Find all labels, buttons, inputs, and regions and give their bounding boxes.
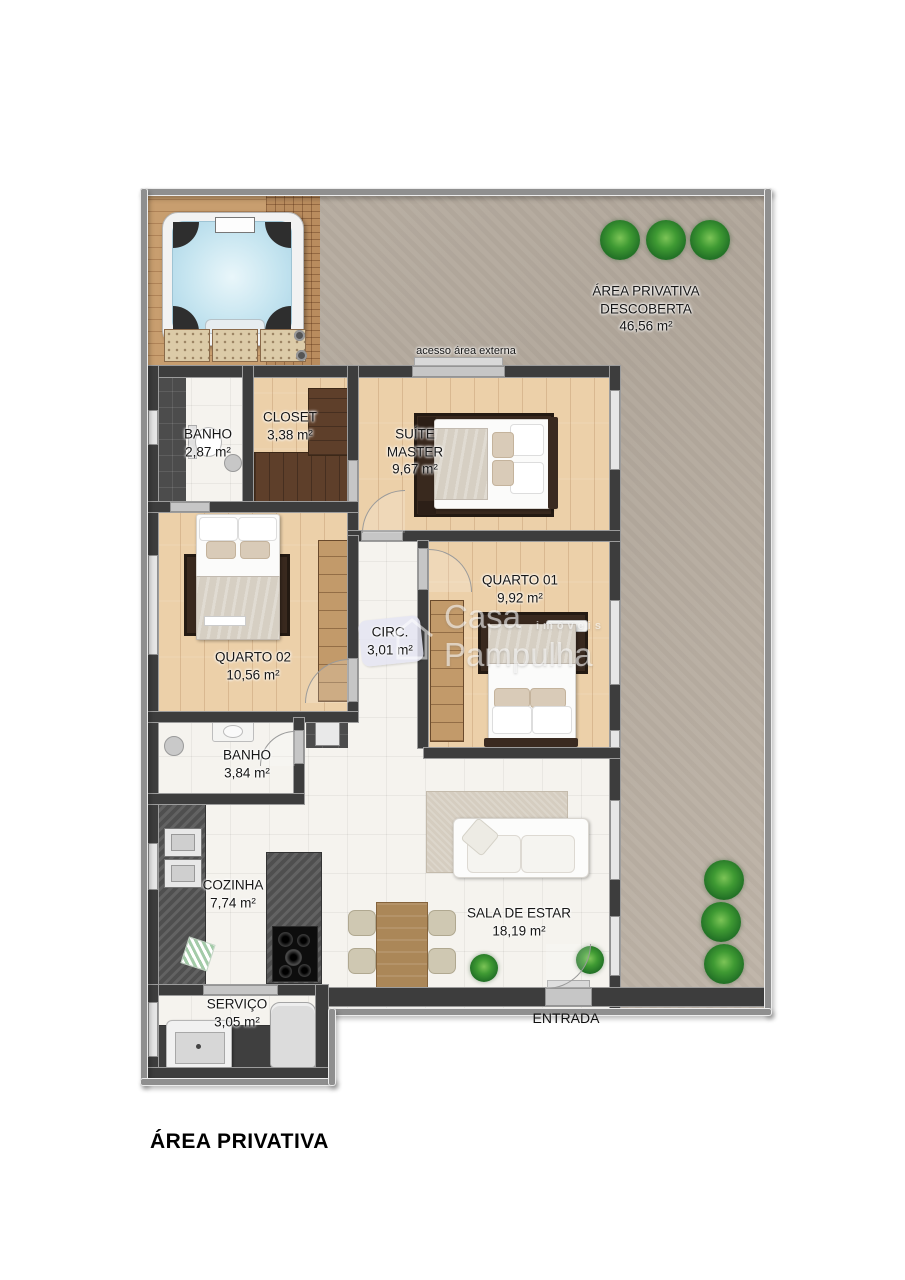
suite-master-label: SUÍTE MASTER 9,67 m² bbox=[387, 426, 443, 479]
window bbox=[610, 916, 620, 976]
door-opening bbox=[348, 460, 358, 504]
cooktop bbox=[272, 926, 318, 982]
burner bbox=[297, 934, 310, 947]
bed-runner bbox=[204, 616, 246, 626]
site-boundary bbox=[764, 188, 772, 1016]
quarto-02-pillow bbox=[240, 541, 270, 559]
deck-mat bbox=[212, 329, 258, 362]
external-access-door bbox=[412, 366, 505, 377]
window bbox=[610, 800, 620, 880]
wall bbox=[243, 366, 253, 512]
site-boundary bbox=[140, 1078, 336, 1086]
site-boundary bbox=[328, 1008, 336, 1086]
dining-table bbox=[376, 902, 428, 990]
window bbox=[610, 730, 620, 750]
kitchen-sink bbox=[164, 859, 202, 888]
quarto-01-pillow bbox=[494, 688, 530, 708]
quarto-01-pillow bbox=[492, 706, 532, 734]
dining-chair bbox=[428, 948, 456, 974]
deck-fitting bbox=[296, 350, 307, 361]
sink-bowl bbox=[171, 834, 195, 851]
dining-chair bbox=[428, 910, 456, 936]
deck-mat bbox=[164, 329, 210, 362]
deck-fitting bbox=[294, 330, 305, 341]
patio-plant bbox=[704, 860, 744, 900]
patio-plant bbox=[646, 220, 686, 260]
window bbox=[148, 843, 158, 890]
door-opening bbox=[170, 502, 210, 512]
patio-plant bbox=[690, 220, 730, 260]
banho-suite-label: BANHO 2,87 m² bbox=[184, 425, 232, 460]
shower-area bbox=[156, 375, 186, 503]
wall bbox=[316, 985, 328, 1078]
floor-drain bbox=[164, 736, 184, 756]
quarto-02-pillow bbox=[199, 517, 238, 541]
quarto-02-pillow bbox=[238, 517, 277, 541]
page-title: ÁREA PRIVATIVA bbox=[150, 1130, 329, 1154]
watermark-brand-line1: Casa bbox=[444, 598, 521, 636]
suite-bed-pillow bbox=[510, 462, 544, 494]
entrada-label: ENTRADA bbox=[533, 1010, 600, 1026]
watermark-house-icon bbox=[386, 614, 438, 670]
window bbox=[148, 1002, 158, 1057]
door-opening bbox=[348, 658, 358, 702]
window bbox=[610, 600, 620, 685]
door-step bbox=[414, 357, 503, 366]
suite-bed-pillow bbox=[492, 432, 514, 458]
burner bbox=[278, 932, 293, 947]
dining-chair bbox=[348, 910, 376, 936]
sliding-door bbox=[203, 985, 278, 995]
window bbox=[148, 555, 158, 655]
wall bbox=[148, 366, 620, 377]
outdoor-area-label: ÁREA PRIVATIVA DESCOBERTA 46,56 m² bbox=[592, 283, 699, 336]
cozinha-label: COZINHA 7,74 m² bbox=[203, 876, 264, 911]
burner bbox=[279, 965, 292, 978]
burner bbox=[285, 949, 302, 966]
sink-niche bbox=[306, 718, 348, 748]
quarto-02-blanket bbox=[196, 576, 280, 640]
closet-wardrobe bbox=[254, 452, 350, 504]
watermark-brand-line2: Pampulha bbox=[444, 636, 593, 674]
niche-sink bbox=[315, 722, 340, 746]
suite-bed-headboard bbox=[548, 417, 558, 509]
quarto-01-headboard bbox=[484, 738, 578, 747]
entrance-door bbox=[545, 988, 592, 1006]
quarto-02-pillow bbox=[206, 541, 236, 559]
wall bbox=[148, 1068, 328, 1078]
vanity bbox=[212, 720, 254, 742]
hot-tub bbox=[162, 212, 304, 346]
sofa-cushion bbox=[521, 835, 575, 873]
servico-label: SERVIÇO 3,05 m² bbox=[207, 995, 268, 1030]
watermark-brand-sub: imóveis bbox=[536, 620, 605, 632]
wall bbox=[148, 366, 158, 1008]
wall bbox=[148, 712, 358, 722]
laundry-tank bbox=[270, 1002, 316, 1068]
washer-knob bbox=[196, 1044, 201, 1049]
dining-chair bbox=[348, 948, 376, 974]
site-boundary bbox=[140, 188, 772, 196]
door-opening bbox=[294, 730, 304, 764]
window bbox=[610, 390, 620, 470]
floor-plan: ÁREA PRIVATIVA DESCOBERTA 46,56 m² acess… bbox=[148, 196, 764, 1086]
patio-plant bbox=[701, 902, 741, 942]
wall bbox=[318, 988, 764, 1006]
floor-plan-page: ÁREA PRIVATIVA DESCOBERTA 46,56 m² acess… bbox=[0, 0, 905, 1280]
wall bbox=[424, 748, 620, 758]
banho-social-label: BANHO 3,84 m² bbox=[223, 746, 271, 781]
basin bbox=[223, 725, 243, 738]
door-opening bbox=[418, 548, 428, 590]
kitchen-sink bbox=[164, 828, 202, 857]
quarto-02-label: QUARTO 02 10,56 m² bbox=[215, 648, 291, 683]
hot-tub-control-panel bbox=[215, 217, 255, 233]
indoor-plant bbox=[470, 954, 498, 982]
sofa bbox=[453, 818, 589, 878]
wall bbox=[148, 794, 304, 804]
suite-bed-pillow bbox=[492, 460, 514, 486]
site-boundary bbox=[140, 188, 148, 1086]
suite-bed-pillow bbox=[510, 424, 544, 456]
external-access-label: acesso área externa bbox=[416, 344, 516, 358]
sink-bowl bbox=[171, 865, 195, 882]
closet-label: CLOSET 3,38 m² bbox=[263, 408, 317, 443]
patio-plant bbox=[600, 220, 640, 260]
quarto-01-pillow bbox=[530, 688, 566, 708]
quarto-01-pillow bbox=[532, 706, 572, 734]
sala-de-estar-label: SALA DE ESTAR 18,19 m² bbox=[467, 904, 571, 939]
burner bbox=[298, 964, 311, 977]
patio-plant bbox=[704, 944, 744, 984]
window bbox=[148, 410, 158, 445]
